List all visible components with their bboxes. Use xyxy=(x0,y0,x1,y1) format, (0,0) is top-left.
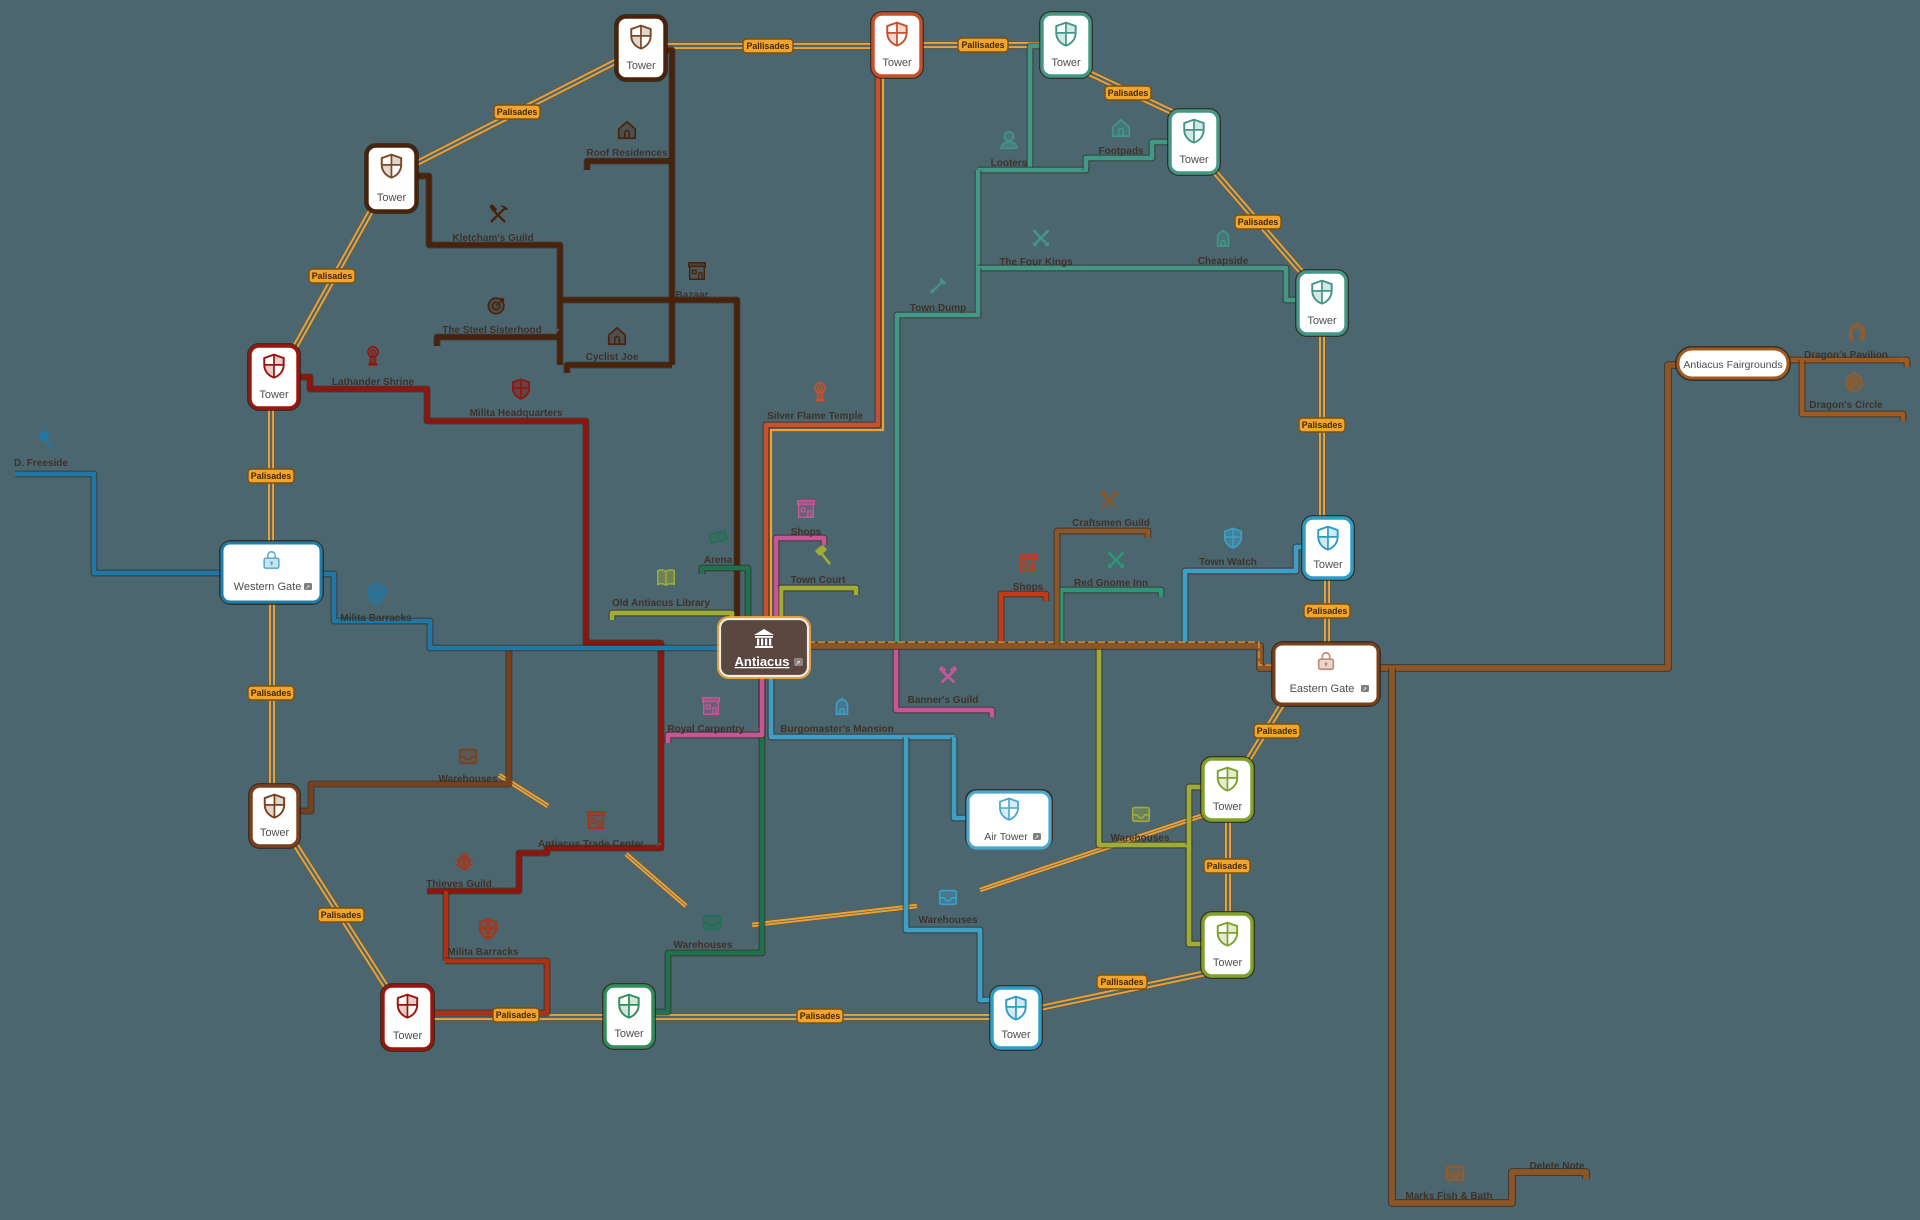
svg-text:↗: ↗ xyxy=(738,943,744,950)
svg-text:↗: ↗ xyxy=(795,660,800,667)
svg-text:Eastern Gate: Eastern Gate xyxy=(1290,683,1355,695)
svg-text:Roof Residences: Roof Residences xyxy=(586,148,668,159)
svg-text:↗: ↗ xyxy=(78,461,84,468)
svg-text:↗: ↗ xyxy=(853,578,859,585)
svg-text:↗: ↗ xyxy=(716,293,722,300)
svg-text:Old Antiacus Library: Old Antiacus Library xyxy=(612,598,710,609)
svg-text:Tower: Tower xyxy=(614,1028,644,1040)
svg-text:Western Gate: Western Gate xyxy=(234,581,302,593)
svg-text:Palisades: Palisades xyxy=(1108,88,1149,98)
svg-text:Milita Barracks: Milita Barracks xyxy=(447,947,519,958)
svg-text:Tower: Tower xyxy=(1213,801,1243,813)
svg-text:D. Freeside: D. Freeside xyxy=(14,458,68,469)
svg-text:Royal Carpentry: Royal Carpentry xyxy=(667,724,745,735)
svg-text:Palisades: Palisades xyxy=(1302,420,1343,430)
svg-text:Arena: Arena xyxy=(704,555,733,566)
svg-text:↗: ↗ xyxy=(1034,835,1039,841)
svg-text:↗: ↗ xyxy=(1900,353,1906,360)
svg-text:Palisades: Palisades xyxy=(1307,606,1348,616)
svg-text:↗: ↗ xyxy=(656,842,662,849)
svg-text:↗: ↗ xyxy=(502,882,508,889)
svg-text:Footpads: Footpads xyxy=(1099,146,1144,157)
svg-text:Tower: Tower xyxy=(393,1030,423,1042)
svg-text:Tower: Tower xyxy=(260,827,290,839)
svg-text:Tower: Tower xyxy=(1313,559,1343,571)
svg-text:Palisades: Palisades xyxy=(800,1011,841,1021)
svg-text:Dragon's Pavilion: Dragon's Pavilion xyxy=(1804,350,1888,361)
svg-text:↗: ↗ xyxy=(544,236,550,243)
svg-text:Tower: Tower xyxy=(882,57,912,69)
svg-text:Looters: Looters xyxy=(991,158,1028,169)
svg-text:Tower: Tower xyxy=(1307,315,1337,327)
svg-text:↗: ↗ xyxy=(989,698,995,705)
svg-text:The Steel Sisterhood: The Steel Sisterhood xyxy=(442,325,541,336)
svg-text:Shops: Shops xyxy=(1013,582,1044,593)
svg-text:Pallisades: Pallisades xyxy=(961,40,1004,50)
svg-text:Town Court: Town Court xyxy=(791,575,846,586)
svg-text:Palisades: Palisades xyxy=(1207,861,1248,871)
svg-text:Town Dump: Town Dump xyxy=(910,303,966,314)
svg-text:Palisades: Palisades xyxy=(251,471,292,481)
svg-text:Milita Barracks: Milita Barracks xyxy=(340,613,412,624)
svg-text:↗: ↗ xyxy=(649,355,655,362)
svg-text:Antiacus: Antiacus xyxy=(735,654,790,669)
svg-text:↗: ↗ xyxy=(1503,1194,1509,1201)
svg-text:Tower: Tower xyxy=(626,60,656,72)
svg-text:↗: ↗ xyxy=(1894,403,1900,410)
svg-text:Milita Headquarters: Milita Headquarters xyxy=(470,408,563,419)
svg-text:↗: ↗ xyxy=(754,727,760,734)
svg-text:↗: ↗ xyxy=(1362,687,1367,693)
svg-text:Tower: Tower xyxy=(1051,57,1081,69)
svg-text:Palisades: Palisades xyxy=(1257,726,1298,736)
svg-text:Banner's Guild: Banner's Guild xyxy=(908,695,979,706)
svg-text:↗: ↗ xyxy=(531,950,537,957)
svg-text:Palisades: Palisades xyxy=(251,688,292,698)
svg-text:Palisades: Palisades xyxy=(1238,217,1279,227)
svg-text:Silver Flame Temple: Silver Flame Temple xyxy=(767,411,863,422)
svg-text:↗: ↗ xyxy=(723,601,729,608)
svg-text:↗: ↗ xyxy=(1263,560,1269,567)
svg-text:↗: ↗ xyxy=(902,727,908,734)
svg-text:Tower: Tower xyxy=(1179,154,1209,166)
svg-text:Dragon's Circle: Dragon's Circle xyxy=(1809,400,1883,411)
svg-text:Warehouses: Warehouses xyxy=(438,774,498,785)
svg-text:Town Watch: Town Watch xyxy=(1199,557,1257,568)
svg-text:Red Gnome Inn: Red Gnome Inn xyxy=(1074,578,1148,589)
svg-text:↗: ↗ xyxy=(554,328,560,335)
svg-text:↗: ↗ xyxy=(1154,581,1160,588)
svg-text:Antiacus Fairgrounds: Antiacus Fairgrounds xyxy=(1683,359,1782,371)
svg-text:Bazaar: Bazaar xyxy=(676,290,709,301)
svg-text:↗: ↗ xyxy=(874,414,880,421)
svg-text:The Four Kings: The Four Kings xyxy=(999,257,1073,268)
svg-text:Cyclist Joe: Cyclist Joe xyxy=(586,352,639,363)
svg-text:Kletcham's Guild: Kletcham's Guild xyxy=(452,233,533,244)
svg-text:Palisades: Palisades xyxy=(497,107,538,117)
svg-text:Pallisades: Pallisades xyxy=(1100,977,1143,987)
svg-text:Palisades: Palisades xyxy=(496,1010,537,1020)
svg-text:Palisades: Palisades xyxy=(321,910,362,920)
svg-text:↗: ↗ xyxy=(305,585,310,591)
svg-text:Palisades: Palisades xyxy=(312,271,353,281)
svg-text:Tower: Tower xyxy=(259,389,289,401)
svg-text:Thieves Guild: Thieves Guild xyxy=(426,879,492,890)
svg-text:Warehouses: Warehouses xyxy=(673,940,733,951)
svg-text:↗: ↗ xyxy=(1082,260,1088,267)
svg-text:Antiacus Trade Center: Antiacus Trade Center xyxy=(538,839,644,850)
svg-text:Cheapside: Cheapside xyxy=(1198,256,1249,267)
svg-text:↗: ↗ xyxy=(575,411,581,418)
svg-text:Lathander Shrine: Lathander Shrine xyxy=(332,377,415,388)
svg-text:Warehouses: Warehouses xyxy=(1110,833,1170,844)
svg-text:Burgomaster's Mansion: Burgomaster's Mansion xyxy=(780,724,894,735)
svg-text:Marks Fish & Bath: Marks Fish & Bath xyxy=(1405,1191,1492,1202)
svg-text:Pallisades: Pallisades xyxy=(746,41,789,51)
svg-text:Craftsmen Guild: Craftsmen Guild xyxy=(1072,518,1150,529)
svg-text:Shops: Shops xyxy=(791,527,822,538)
svg-text:Delete Note: Delete Note xyxy=(1529,1161,1584,1172)
svg-text:Tower: Tower xyxy=(377,192,407,204)
svg-text:Tower: Tower xyxy=(1213,957,1243,969)
svg-text:Tower: Tower xyxy=(1001,1029,1031,1041)
svg-text:Warehouses: Warehouses xyxy=(918,915,978,926)
svg-text:Air Tower: Air Tower xyxy=(984,831,1028,843)
